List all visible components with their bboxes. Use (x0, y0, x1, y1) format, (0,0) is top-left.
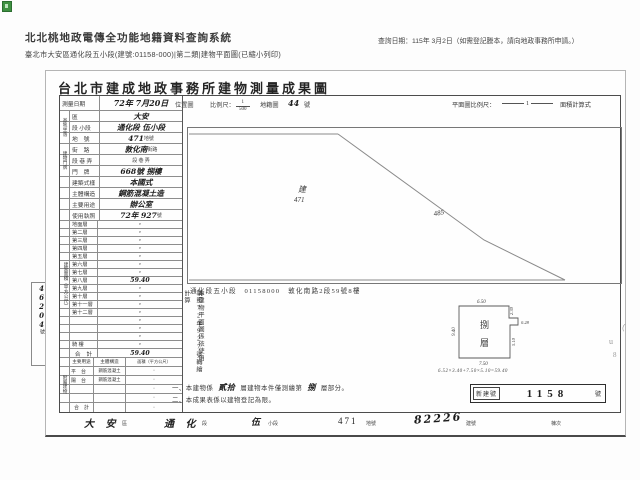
dim-right-tab: 0.28 (521, 320, 530, 325)
map-scale-label: 比例尺： (210, 100, 235, 109)
floor-label: 第十層 (70, 293, 98, 300)
info-row-label: 段 小段 (70, 122, 100, 132)
group-cell (60, 210, 70, 220)
annex-row: · (60, 394, 182, 403)
footer-district: 大 安 (84, 415, 119, 430)
annex-header-area: 面積（平方公尺） (126, 358, 182, 366)
floor-area-value: · (98, 269, 182, 276)
floor-area-value: 59.40 (98, 277, 182, 284)
annex-header-row: 主要用途 主體構造 面積（平方公尺） (60, 358, 182, 367)
plan-scale-value: 1 (500, 100, 555, 107)
info-row-value: 471 (128, 134, 144, 143)
info-row-value: 通化段 伍小段 (117, 122, 165, 132)
info-row: 段 巷 弄 段 巷 弄 (60, 155, 182, 166)
new-building-number-box: 新建號 1158 號 (470, 384, 606, 403)
floor-label: 地面層 (70, 221, 98, 228)
floor-label: 第二層 (70, 229, 98, 236)
floor-area-row: 第九層 · (60, 285, 182, 293)
floor-area-value: · (98, 229, 182, 236)
dim-left: 9.40 (452, 327, 457, 336)
annex-use (70, 385, 94, 393)
floor-area-total-label: 合 計 (70, 349, 98, 357)
info-row-label: 街 路 (70, 144, 100, 154)
floor-plan-drawing: 6.50 9.40 2.30 0.28 5.10 7.50 捌 層 (445, 296, 555, 368)
cadastral-sheet-number: 44 (288, 98, 299, 108)
info-row: 使用執照 72年 927號 (60, 210, 182, 221)
margin-mark-2: u (609, 337, 613, 346)
note-1: 一、本建物係貳拾層建物本件僅測繪第捌層部分。 (172, 382, 348, 393)
dim-top: 6.50 (477, 300, 486, 305)
annex-row: 平 台 鋼筋混凝土 · (60, 367, 182, 376)
footer-parcel-number: 471 (338, 416, 358, 426)
survey-date-label: 測量日期 (60, 96, 100, 110)
annex-rows: 平 台 鋼筋混凝土 · 陽 台 鋼筋混凝土 · (60, 367, 182, 403)
footer-building-unit: 建號 (466, 420, 476, 427)
floor-area-value: · (98, 253, 182, 260)
annex-total-row: 合 計 · (60, 403, 182, 412)
floor-area-row: 第二層 · (60, 229, 182, 237)
new-building-number-label: 新建號 (473, 387, 500, 400)
annex-area: · (126, 367, 182, 375)
floor-area-row: 第十二層 · (60, 309, 182, 317)
floor-area-value: · (98, 293, 182, 300)
floor-char-top: 捌 (480, 319, 489, 330)
footer-building-number: 82226 (414, 410, 463, 426)
floor-area-value: · (98, 317, 182, 324)
annex-header-use: 主要用途 (70, 358, 94, 366)
annex-use: 陽 台 (70, 376, 94, 384)
info-rows: 區 大安 段 小段 通化段 伍小段 地 號 471地號 (60, 111, 182, 221)
site-group-label: 基地坐落 (61, 111, 70, 144)
floor-area-row: · (60, 317, 182, 325)
floor-area-row: 第五層 · (60, 253, 182, 261)
floor-label: 第三層 (70, 237, 98, 244)
floor-label (70, 325, 98, 332)
info-row: 建築式樣 本國式 (60, 177, 182, 188)
info-row-value: 辦公室 (130, 199, 153, 209)
annex-row: 陽 台 鋼筋混凝土 · (60, 376, 182, 385)
new-building-number-unit: 號 (595, 389, 605, 398)
location-map: 建 471 485 (187, 127, 622, 284)
info-row-value: 鋼筋混凝土造 (118, 188, 164, 198)
scan-artifact-green (2, 1, 12, 12)
annex-group-label: 附屬建物 (61, 358, 70, 410)
floor-area-total-value: 59.40 (98, 350, 182, 357)
floor-area-value: · (98, 333, 182, 340)
annex-use (70, 394, 94, 402)
info-row-unit: 街路 (147, 146, 157, 153)
plan-scale-label: 平面圖比例尺： (452, 100, 495, 109)
annex-use: 平 台 (70, 367, 94, 375)
footer-unit-label: 棟次 (551, 420, 561, 427)
group-cell (60, 188, 70, 198)
info-row-label: 區 (70, 111, 100, 121)
info-row: 區 大安 (60, 111, 182, 122)
dim-right-upper: 2.30 (509, 306, 514, 315)
floor-label: 第九層 (70, 285, 98, 292)
footer-subsection: 伍 (251, 415, 264, 428)
floor-area-value: · (98, 301, 182, 308)
map-caption: 通化段五小段 01158000 敦化南路2段59號8樓 (190, 285, 361, 295)
floor-area-rows: 地面層 · 第二層 · 第三層 · (60, 221, 182, 349)
area-formula: 6.52×3.40+7.50×5.10=59.40 (438, 369, 508, 374)
floor-area-row: · (60, 333, 182, 341)
group-cell (60, 177, 70, 187)
info-row: 門 牌 668號 捌樓 (60, 166, 182, 177)
survey-date-row: 測量日期 72年 7月20日 (60, 96, 182, 111)
note-1-hand-floors: 貳拾 (218, 382, 235, 392)
floor-area-row: · (60, 325, 182, 333)
annex-structure (94, 394, 126, 402)
floor-area-value: · (98, 245, 182, 252)
footer-section: 通 化 (164, 415, 199, 430)
annex-structure: 鋼筋混凝土 (94, 367, 126, 375)
annex-structure (94, 385, 126, 393)
floor-label: 第四層 (70, 245, 98, 252)
info-row: 主要用途 辦公室 (60, 199, 182, 210)
floor-label: 第七層 (70, 269, 98, 276)
floor-area-value: · (98, 325, 182, 332)
plan-note-column-left: 執照72年927號轉繪計算 (180, 290, 204, 380)
floor-char-bottom: 層 (480, 338, 489, 348)
map-scale-denominator: 500 (236, 106, 250, 113)
margin-mark-3: 8 (613, 351, 617, 359)
document-sheet: 台北市建成地政事務所建物測量成果圖 位置圖 比例尺： 1500 地籍圖 44 號… (45, 70, 626, 437)
annex-row: · (60, 385, 182, 394)
info-row-label: 建築式樣 (70, 177, 100, 187)
floor-area-value: · (98, 237, 182, 244)
floor-label (70, 333, 98, 340)
address-group-label: 建物門牌 (61, 144, 70, 177)
cadastral-sheet-unit: 號 (304, 100, 310, 109)
floor-label: 第六層 (70, 261, 98, 268)
info-row-label: 地 號 (70, 133, 100, 143)
new-building-number-value: 1158 (500, 388, 595, 400)
annex-structure: 鋼筋混凝土 (94, 376, 126, 384)
application-number-suffix: 號 (39, 329, 44, 334)
note-2: 二、本成果表係以建物登記為限。 (172, 395, 275, 404)
group-cell (60, 199, 70, 209)
footer-strip: 大 安 區 通 化 段 伍 小段 471 地號 82226 建號 棟次 (46, 412, 625, 432)
query-date: 查詢日期：115年 3月2日（如需登記謄本，請向地政事務所申請。） (378, 35, 578, 45)
info-row-label: 段 巷 弄 (70, 155, 100, 165)
floor-area-value: · (98, 261, 182, 268)
info-row: 地 號 471地號 (60, 133, 182, 144)
dim-right-lower: 5.10 (511, 337, 516, 346)
dim-bottom: 7.50 (479, 362, 488, 367)
floor-area-row: 第十一層 · (60, 301, 182, 309)
footer-section-unit: 段 (202, 420, 207, 427)
floor-area-value: · (98, 309, 182, 316)
info-row-value: 大安 (133, 111, 148, 121)
floor-area-group-label: 建築面積（平方公尺） (61, 222, 71, 348)
info-row-value: 本國式 (130, 177, 153, 187)
location-map-drawing: 建 471 485 (188, 128, 621, 283)
info-row-value: 668號 捌樓 (120, 166, 161, 176)
floor-plan: 6.50 9.40 2.30 0.28 5.10 7.50 捌 層 (445, 296, 555, 373)
info-row-label: 主要用途 (70, 199, 100, 209)
floor-area-row: 第六層 · (60, 261, 182, 269)
left-form-table: 測量日期 72年 7月20日 區 大安 段 小段 通化段 伍小段 (60, 96, 183, 412)
floor-area-row: 騎 樓 · (60, 341, 182, 349)
floor-area-total-row: 合 計 59.40 (60, 349, 182, 358)
annex-total-label: 合 計 (70, 403, 94, 412)
info-row: 主體構造 鋼筋混凝土造 (60, 188, 182, 199)
cadastral-map-label: 地籍圖 (260, 100, 279, 109)
floor-label: 騎 樓 (70, 341, 98, 348)
floor-label: 第五層 (70, 253, 98, 260)
info-row: 段 小段 通化段 伍小段 (60, 122, 182, 133)
info-row-unit: 地號 (144, 135, 154, 142)
map-adjacent-number: 485 (433, 208, 445, 218)
info-row-unit: 號 (157, 212, 162, 219)
floor-area-row: 第三層 · (60, 237, 182, 245)
annex-total-area: · (126, 403, 182, 412)
info-row-value: 72年 927 (120, 210, 157, 220)
footer-district-unit: 區 (122, 420, 127, 427)
map-parcel-number: 471 (294, 196, 305, 204)
floor-area-row: 第八層 59.40 (60, 277, 182, 285)
annex-header-structure: 主體構造 (94, 358, 126, 366)
floor-area-value: · (98, 221, 182, 228)
map-scale-fraction: 1500 (236, 97, 250, 115)
footer-parcel-unit: 地號 (366, 420, 376, 427)
floor-area-value: · (98, 285, 182, 292)
map-parcel-label: 建 (298, 185, 307, 194)
area-calc-label: 面積計算式 (560, 100, 591, 109)
system-title: 北北桃地政電傳全功能地籍資料查詢系統 (25, 30, 232, 45)
floor-label: 第十一層 (70, 301, 98, 308)
info-row-unit: 段 巷 弄 (132, 157, 150, 164)
floor-area-value: · (98, 341, 182, 348)
info-row-label: 使用執照 (70, 210, 100, 220)
note-1-hand-floor: 捌 (307, 382, 316, 392)
info-row: 街 路 敦化南街路 (60, 144, 182, 155)
page-subtitle: 臺北市大安區通化段五小段(建號:01158-000)|第二類|建物平面圖(已縮小… (25, 50, 281, 60)
footer-subsection-unit: 小段 (268, 420, 278, 427)
survey-form: 位置圖 比例尺： 1500 地籍圖 44 號 平面圖比例尺： 1 面積計算式 測… (59, 95, 621, 413)
info-row-label: 門 牌 (70, 166, 100, 176)
floor-label: 第十二層 (70, 309, 98, 316)
survey-date-value: 72年 7月20日 (100, 96, 182, 110)
info-row-value: 敦化南 (125, 144, 148, 154)
floor-label (70, 317, 98, 324)
floor-label: 第八層 (70, 277, 98, 284)
info-row-label: 主體構造 (70, 188, 100, 198)
floor-area-row: 第十層 · (60, 293, 182, 301)
floor-area-row: 第四層 · (60, 245, 182, 253)
floor-area-row: 地面層 · (60, 221, 182, 229)
floor-area-row: 第七層 · (60, 269, 182, 277)
